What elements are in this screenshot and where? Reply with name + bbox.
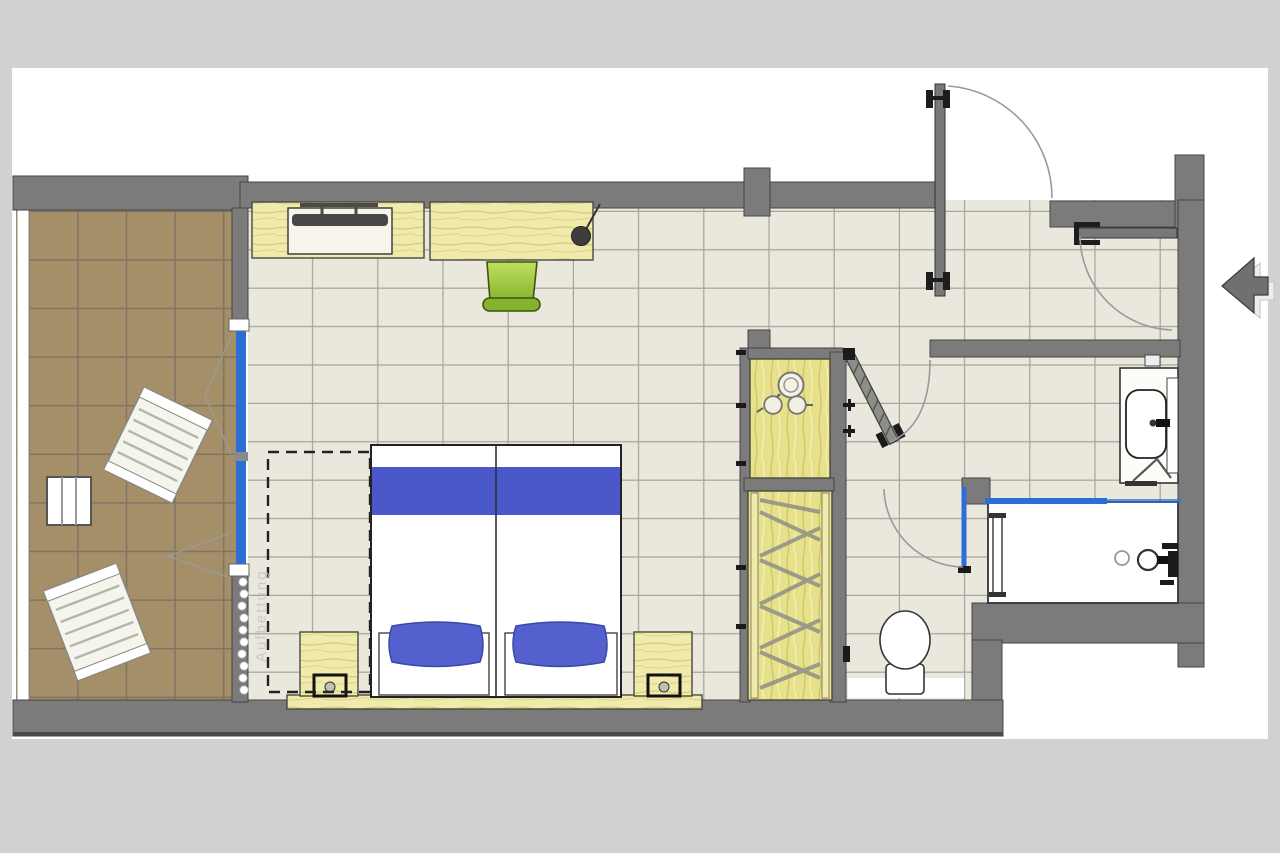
kettle-icon (779, 373, 804, 398)
desk-lamp-icon (572, 227, 591, 246)
bathtub-icon (985, 498, 1181, 603)
balcony-side-table (47, 477, 91, 525)
window-end-post-bottom (229, 564, 249, 576)
wall-window-top (232, 208, 248, 330)
towel-bar-icon (993, 516, 1002, 594)
window-glazing (236, 330, 246, 572)
wall-right-exterior (1178, 200, 1204, 667)
wall-bath-bottom (972, 603, 1204, 643)
pillow-left (389, 622, 483, 667)
desk (430, 202, 600, 260)
nightstand-right (634, 632, 692, 696)
washbasin-vanity (1120, 355, 1178, 486)
cup-left-icon (764, 396, 782, 414)
desk-chair-icon (483, 262, 540, 311)
wall-entrance-right (1050, 201, 1180, 227)
nightstand-left (300, 632, 358, 696)
pillow-right (513, 622, 607, 667)
wall-bottom-edge (13, 732, 1003, 736)
double-bed-icon (371, 445, 621, 697)
wall-top-balcony (13, 176, 248, 210)
cup-right-icon (788, 396, 806, 414)
toilet-icon (880, 611, 930, 694)
extra-bed-label: Aufbettung (253, 569, 270, 662)
minibar-niche (750, 359, 830, 478)
wall-niche-top (748, 348, 843, 359)
floor-plan-drawing: Aufbettung (0, 0, 1280, 853)
wall-bath-top (930, 340, 1180, 357)
balcony-railing (17, 210, 29, 702)
wall-pier (744, 168, 770, 216)
window-end-post-top (229, 319, 249, 331)
toilet-paper-holder-icon (843, 646, 850, 662)
tv-bracket (300, 203, 378, 207)
window-mid-post (234, 452, 248, 461)
tv-sideboard (252, 202, 424, 258)
wall-dispenser (1145, 355, 1160, 366)
tub-faucet-icon (1138, 550, 1158, 570)
wall-bath-stub (972, 640, 1002, 702)
glass-screen (985, 498, 1107, 504)
floor-plan-page: Aufbettung (0, 0, 1280, 853)
basin-faucet-icon (1156, 419, 1170, 427)
flat-screen-tv-icon (292, 214, 388, 226)
wall-niche-shelf (744, 478, 834, 491)
